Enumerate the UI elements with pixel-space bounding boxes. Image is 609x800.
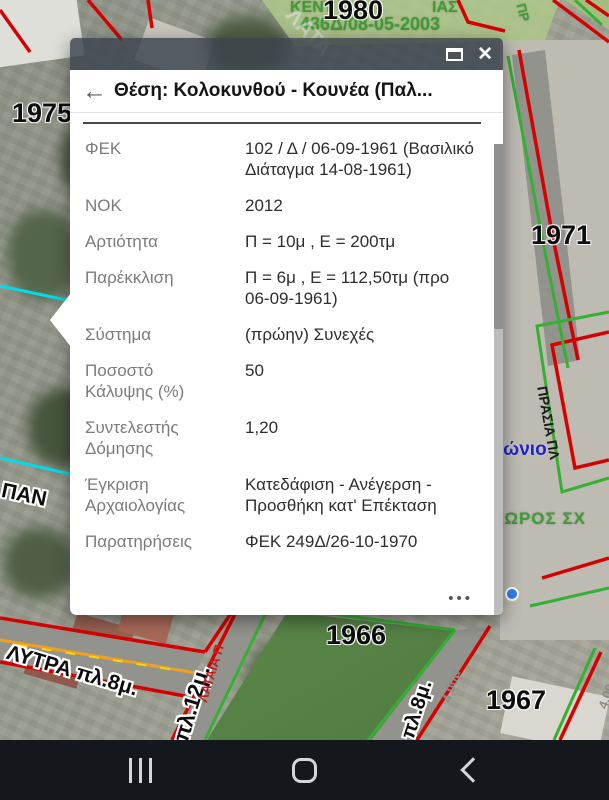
zone-label-pr: ΠΡ: [514, 2, 531, 23]
property-value: 102 / Δ / 06-09-1961 (Βασιλικό Διάταγμα …: [245, 138, 478, 180]
popup-title: Θέση: Κολοκυνθού - Κουνέα (Παλ...: [114, 80, 433, 102]
property-value: (πρώην) Συνεχές: [245, 324, 478, 345]
property-value: 1,20: [245, 417, 478, 459]
property-label: Συντελεστής Δόμησης: [85, 417, 220, 459]
recents-button[interactable]: [105, 740, 175, 800]
property-label: Έγκριση Αρχαιολογίας: [85, 474, 220, 516]
property-value: 2012: [245, 195, 478, 216]
close-icon[interactable]: ✕: [477, 45, 493, 64]
property-row: Σύστημα (πρώην) Συνεχές: [85, 324, 488, 345]
popup-titlebar: ✕: [70, 38, 503, 70]
popup-scrollbar[interactable]: [494, 144, 503, 615]
maximize-icon[interactable]: [446, 48, 463, 61]
property-list: ΦΕΚ 102 / Δ / 06-09-1961 (Βασιλικό Διάτα…: [70, 124, 503, 552]
property-label: Παρατηρήσεις: [85, 531, 220, 552]
property-label: Παρέκκλιση: [85, 267, 220, 309]
popup-pointer: [50, 293, 71, 347]
property-label: ΦΕΚ: [85, 138, 220, 180]
property-row: Έγκριση Αρχαιολογίας Κατεδάφιση - Ανέγερ…: [85, 474, 488, 516]
property-row: ΝΟΚ 2012: [85, 195, 488, 216]
back-button[interactable]: [435, 740, 505, 800]
property-value: Κατεδάφιση - Ανέγερση - Προσθήκη κατ' Επ…: [245, 474, 478, 516]
property-row: Ποσοστό Κάλυψης (%) 50: [85, 360, 488, 402]
property-label: Αρτιότητα: [85, 231, 220, 252]
more-options-button[interactable]: •••: [448, 590, 473, 607]
block-number: 1975: [12, 100, 72, 127]
block-number: 1966: [326, 622, 386, 649]
info-popup: ✕ ← Θέση: Κολοκυνθού - Κουνέα (Παλ... ΦΕ…: [70, 38, 503, 615]
scrollbar-thumb[interactable]: [494, 144, 503, 329]
property-row: Παρέκκλιση Π = 6μ , Ε = 112,50τμ (προ 06…: [85, 267, 488, 309]
android-navbar: [0, 740, 609, 800]
block-number: 1971: [531, 222, 591, 249]
block-number: 1980: [323, 0, 383, 24]
map-marker-icon[interactable]: [506, 588, 518, 600]
property-value: Π = 10μ , Ε = 200τμ: [245, 231, 478, 252]
popup-title-row: ← Θέση: Κολοκυνθού - Κουνέα (Παλ...: [70, 70, 503, 113]
property-row: Παρατηρήσεις ΦΕΚ 249Δ/26-10-1970: [85, 531, 488, 552]
property-value: 50: [245, 360, 478, 402]
popup-body: ← Θέση: Κολοκυνθού - Κουνέα (Παλ... ΦΕΚ …: [70, 70, 503, 615]
property-row: Συντελεστής Δόμησης 1,20: [85, 417, 488, 459]
property-value: Π = 6μ , Ε = 112,50τμ (προ 06-09-1961): [245, 267, 478, 309]
property-label: Ποσοστό Κάλυψης (%): [85, 360, 220, 402]
property-row: ΦΕΚ 102 / Δ / 06-09-1961 (Βασιλικό Διάτα…: [85, 138, 488, 180]
zone-label-xoros: ΧΩΡΟΣ ΣΧ: [492, 510, 586, 527]
property-label: Σύστημα: [85, 324, 220, 345]
back-arrow-icon[interactable]: ←: [82, 79, 107, 104]
property-value: ΦΕΚ 249Δ/26-10-1970: [245, 531, 478, 552]
property-label: ΝΟΚ: [85, 195, 220, 216]
block-number: 1967: [486, 687, 546, 714]
home-button[interactable]: [269, 740, 339, 800]
property-row: Αρτιότητα Π = 10μ , Ε = 200τμ: [85, 231, 488, 252]
